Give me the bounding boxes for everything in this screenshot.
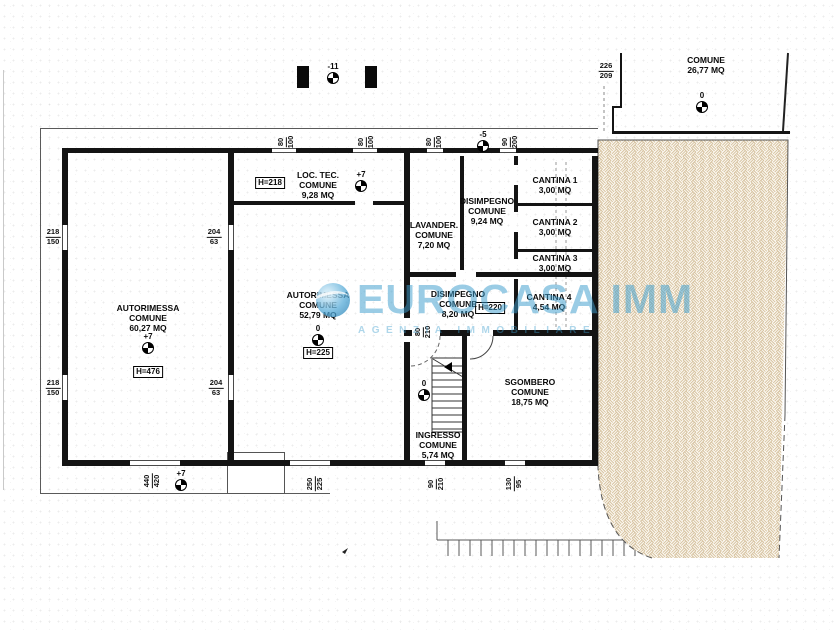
wall-segment [62,250,68,375]
floor-plan-canvas: AUTORIMESSA COMUNE 60,27 MQ +7 H=476 AUT… [0,0,840,630]
level-marker: +7 [355,171,367,192]
level-marker: -5 [477,131,489,152]
dim-bottom: 150 [47,389,60,398]
room-label-lavanderia: LAVANDER. COMUNE 7,20 MQ [410,221,458,251]
dim-bottom: 100 [367,136,376,149]
dimension-label: 226 209 [599,62,614,80]
level-value: -5 [479,131,486,139]
boundary-line-top [40,128,598,129]
height-badge: H=220 [475,302,505,314]
level-value: -11 [327,63,338,71]
level-marker: +7 [142,333,154,354]
room-label-courtyard: COMUNE 26,77 MQ [687,56,725,76]
dimension-label: 218 150 [46,228,61,246]
dim-bottom: 209 [600,72,613,81]
dim-bottom: 210 [424,326,433,339]
dim-bottom: 63 [210,238,218,247]
wall-segment [525,460,598,466]
dimension-label: 440 420 [143,474,161,489]
level-value: +7 [176,470,185,478]
room-area: 3,00 MQ [532,186,577,196]
dim-bottom: 100 [435,136,444,149]
level-marker-icon [312,334,324,346]
dim-bottom: 150 [47,238,60,247]
room-area: 7,20 MQ [410,241,458,251]
level-marker: 0 [418,380,430,401]
room-area: 3,00 MQ [532,228,577,238]
wall-segment [404,342,410,460]
wall-segment [180,460,290,466]
level-marker: +7 [175,470,187,491]
wall-segment [516,148,598,153]
room-area: 5,74 MQ [416,451,461,461]
window-opening [228,375,234,400]
room-label-disimpegno-upper: DISIMPEGNO COMUNE 9,24 MQ [460,197,514,227]
wall-segment [404,330,412,336]
level-value: +7 [143,333,152,341]
hatched-terrain [598,140,788,558]
room-label-loc-tec: LOC. TEC. COMUNE 9,28 MQ [297,171,339,201]
dimension-label: 80 100 [277,136,295,149]
dim-bottom: 210 [437,478,446,491]
level-marker-icon [355,180,367,192]
dimension-label: 80 100 [425,136,443,149]
wall-segment [330,460,425,466]
window-opening [272,148,296,153]
room-label-sgombero: SGOMBERO COMUNE 18,75 MQ [505,378,556,408]
wall-segment [62,460,130,466]
dimension-label: 218 150 [46,379,61,397]
wall-segment [514,156,518,165]
dimension-label: 204 63 [209,379,224,397]
door-arc-sgombero [470,336,493,359]
wall-segment [462,336,467,460]
room-area: 26,77 MQ [687,66,725,76]
exterior-step [227,452,285,494]
courtyard-right-wall [783,53,788,131]
wall-segment [514,279,518,330]
height-badge: H=218 [255,177,285,189]
height-badge: H=225 [303,347,333,359]
dimension-label: 90 210 [427,478,445,491]
dimension-label: 204 63 [207,228,222,246]
room-area: 9,28 MQ [297,191,339,201]
dim-bottom: 95 [515,480,524,488]
dimension-label: 80 210 [414,326,432,339]
boundary-line-bottom [40,493,330,494]
door-opening [425,460,445,466]
dimension-label: 80 100 [357,136,375,149]
room-area: 52,79 MQ [287,311,350,321]
wall-segment [443,148,500,153]
wall-segment [228,148,234,225]
room-area: 18,75 MQ [505,398,556,408]
wall-segment [516,203,592,206]
wall-segment [62,400,68,460]
wall-segment [228,250,234,375]
courtyard-wall [612,131,790,134]
level-marker-icon [327,72,339,84]
wall-segment [445,460,505,466]
window-opening [62,375,68,400]
window-opening [505,460,525,466]
wall-segment [592,156,598,460]
wall-segment [228,400,234,460]
level-marker-icon [696,101,708,113]
wall-segment [514,185,518,212]
survey-mark [342,548,348,554]
level-marker: 0 [696,92,708,113]
level-marker-icon [477,140,489,152]
level-marker: 0 [312,325,324,346]
room-area: 9,24 MQ [460,217,514,227]
room-label-cantina3: CANTINA 3 3,00 MQ [532,254,577,274]
level-marker: -11 [327,63,339,84]
height-badge: H=476 [133,366,163,378]
garage-door-opening [130,460,180,466]
window-opening [62,225,68,250]
room-label-cantina2: CANTINA 2 3,00 MQ [532,218,577,238]
level-marker-icon [142,342,154,354]
level-value: 0 [422,380,426,388]
courtyard-wall [612,106,614,131]
courtyard-wall [620,53,622,108]
level-marker-icon [418,389,430,401]
wall-segment [373,201,408,205]
dimension-label: 90 200 [501,136,519,149]
dim-bottom: 420 [153,475,162,488]
level-value: +7 [356,171,365,179]
wall-segment [377,148,427,153]
wall-segment [514,232,518,259]
window-opening [228,225,234,250]
garage-door-opening [290,460,330,466]
room-label-autorimessa-center: AUTORIMESSA COMUNE 52,79 MQ [287,291,350,321]
wall-segment [404,153,410,203]
level-value: 0 [316,325,320,333]
window-opening [427,148,443,153]
pillar [297,66,309,88]
wall-segment [296,148,353,153]
boundary-line-left [40,128,41,494]
dim-bottom: 63 [212,389,220,398]
dim-bottom: 100 [287,136,296,149]
level-value: 0 [700,92,704,100]
window-opening [353,148,377,153]
wall-segment [516,249,592,252]
dim-bottom: 225 [316,478,325,491]
room-label-ingresso: INGRESSO COMUNE 5,74 MQ [416,431,461,461]
pillar [365,66,377,88]
wall-segment [234,201,355,205]
level-marker-icon [175,479,187,491]
room-label-cantina4: CANTINA 4 4,54 MQ [526,293,571,313]
room-area: 3,00 MQ [532,264,577,274]
wall-segment [62,148,68,225]
dim-bottom: 200 [511,136,520,149]
wall-segment [404,272,456,277]
dimension-label: 130 95 [505,477,523,492]
wall-segment [62,148,272,153]
door-opening [500,148,516,153]
room-label-cantina1: CANTINA 1 3,00 MQ [532,176,577,196]
room-label-autorimessa-left: AUTORIMESSA COMUNE 60,27 MQ [117,304,180,334]
room-area: 4,54 MQ [526,303,571,313]
dimension-label: 250 225 [306,477,324,492]
wall-segment [493,330,598,336]
staircase [432,358,464,432]
